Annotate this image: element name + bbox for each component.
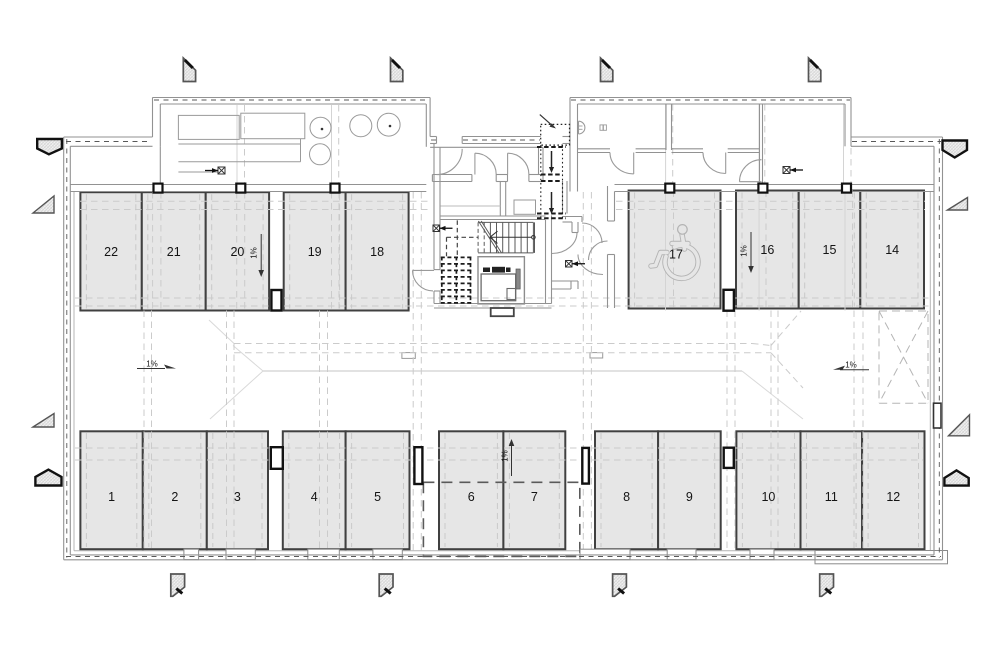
svg-text:1%: 1% (845, 361, 857, 370)
svg-text:4: 4 (311, 490, 318, 504)
svg-text:7: 7 (531, 490, 538, 504)
svg-text:1%: 1% (501, 450, 510, 462)
svg-text:8: 8 (623, 490, 630, 504)
svg-text:20: 20 (230, 245, 244, 259)
svg-text:6: 6 (468, 490, 475, 504)
svg-text:2: 2 (171, 490, 178, 504)
svg-text:1: 1 (108, 490, 115, 504)
svg-text:14: 14 (885, 243, 899, 257)
svg-text:19: 19 (308, 245, 322, 259)
svg-text:16: 16 (760, 243, 774, 257)
svg-text:10: 10 (761, 490, 775, 504)
svg-text:5: 5 (374, 490, 381, 504)
svg-text:9: 9 (686, 490, 693, 504)
svg-text:18: 18 (370, 245, 384, 259)
svg-text:1%: 1% (146, 360, 158, 369)
svg-text:1%: 1% (740, 245, 749, 257)
svg-text:1%: 1% (250, 247, 259, 259)
svg-text:11: 11 (825, 490, 838, 504)
svg-text:12: 12 (886, 490, 900, 504)
svg-text:21: 21 (167, 245, 181, 259)
svg-text:15: 15 (823, 243, 837, 257)
svg-text:3: 3 (234, 490, 241, 504)
svg-text:22: 22 (104, 245, 118, 259)
svg-text:17: 17 (669, 248, 683, 262)
